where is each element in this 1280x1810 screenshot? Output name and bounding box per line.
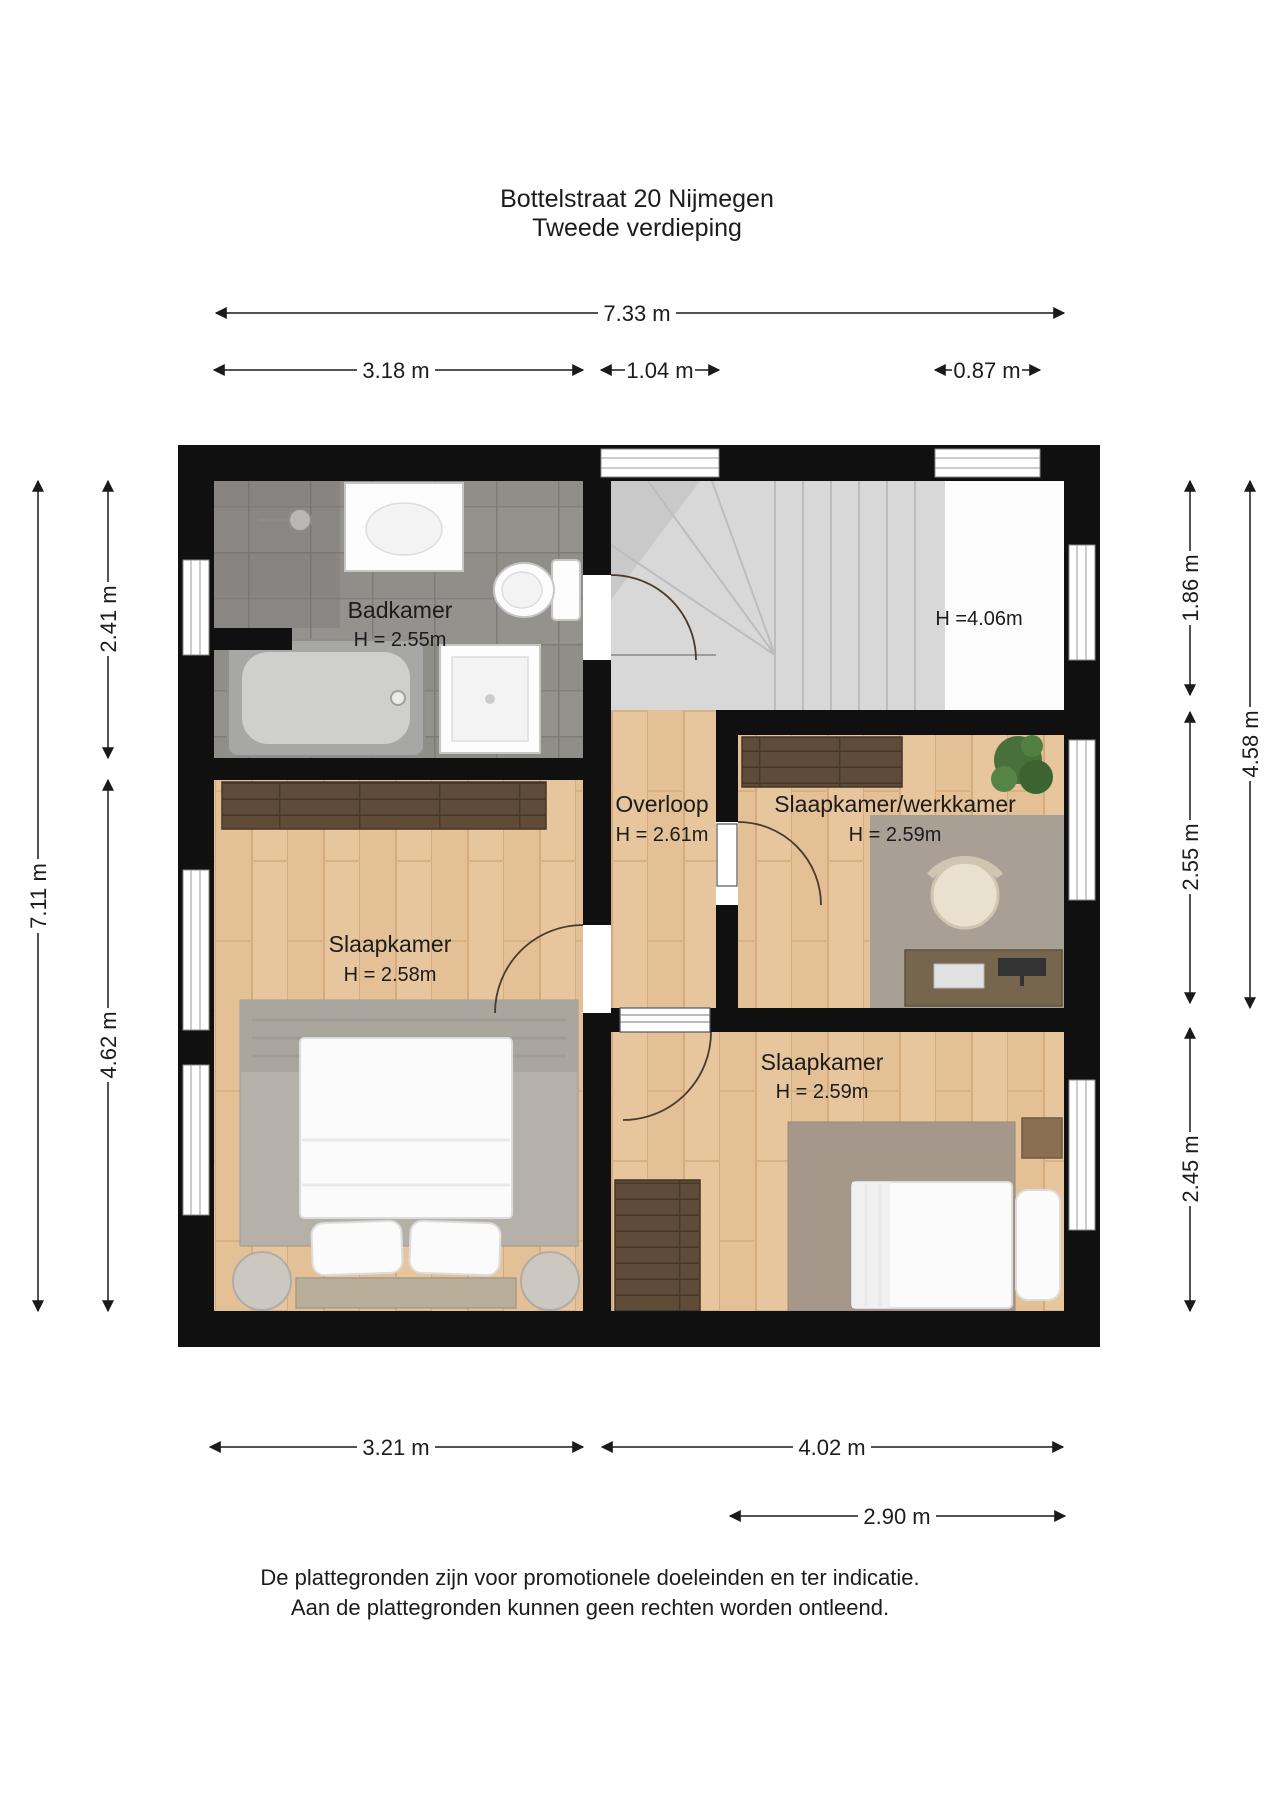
side-table [521, 1252, 579, 1310]
wall-rear-bedroom-top [710, 1008, 1064, 1032]
wall-landing-office-upper [716, 735, 738, 822]
pillow [311, 1220, 403, 1275]
window-left-bathroom [183, 560, 209, 655]
svg-text:2.45 m: 2.45 m [1178, 1135, 1203, 1202]
left-bedroom-label: Slaapkamer [329, 931, 452, 957]
wall-bathroom-landing-upper [583, 481, 611, 575]
wall-bathroom-bedroom [583, 660, 611, 925]
bathtub-interior [242, 652, 410, 744]
plan-title: Bottelstraat 20 Nijmegen Tweede verdiepi… [500, 185, 774, 242]
wardrobe [222, 782, 546, 829]
shower-partition-wall [214, 628, 292, 650]
plant-icon [991, 766, 1017, 792]
headboard [296, 1278, 516, 1308]
office-door-leaf [717, 824, 737, 886]
svg-text:4.58 m: 4.58 m [1238, 710, 1263, 777]
disclaimer-line2: Aan de plattegronden kunnen geen rechten… [291, 1595, 889, 1620]
window-right-rear-bedroom [1069, 1080, 1095, 1230]
rear-bedroom-label: Slaapkamer [761, 1049, 884, 1075]
washbasin-bowl [366, 503, 442, 555]
shower-area [214, 481, 340, 628]
window-right-office [1069, 740, 1095, 900]
window-left-bedroom-upper [183, 870, 209, 1030]
stairwell: H =4.06m [611, 481, 1064, 710]
svg-text:7.33 m: 7.33 m [603, 301, 670, 326]
double-bed-duvet [300, 1038, 512, 1218]
left-bedroom-height: H = 2.58m [344, 964, 437, 986]
toilet-seat [502, 572, 542, 608]
svg-text:3.18 m: 3.18 m [362, 358, 429, 383]
svg-text:4.02 m: 4.02 m [798, 1435, 865, 1460]
title-line1: Bottelstraat 20 Nijmegen [500, 185, 774, 213]
monitor [998, 958, 1046, 976]
wall-bathroom-bottom [214, 758, 583, 780]
floorplan-image: Bottelstraat 20 Nijmegen Tweede verdiepi… [0, 0, 1280, 1810]
shower-drain [485, 694, 495, 704]
disclaimer-line1: De plattegronden zijn voor promotionele … [260, 1565, 919, 1590]
svg-text:0.87 m: 0.87 m [953, 358, 1020, 383]
toilet-cistern [552, 560, 580, 620]
side-table [233, 1252, 291, 1310]
window-left-bedroom-lower [183, 1065, 209, 1215]
keyboard [934, 964, 984, 988]
pillow [409, 1220, 501, 1275]
office-bedroom-height: H = 2.59m [849, 824, 942, 846]
wardrobe [742, 737, 902, 787]
stairwell-height-label: H =4.06m [935, 608, 1022, 630]
svg-text:2.55 m: 2.55 m [1178, 823, 1203, 890]
wardrobe [615, 1180, 700, 1311]
office-bedroom-label: Slaapkamer/werkkamer [774, 791, 1016, 817]
title-line2: Tweede verdieping [532, 214, 742, 242]
wall-rear-bedroom-left [611, 1008, 620, 1032]
svg-text:4.62 m: 4.62 m [96, 1011, 121, 1078]
bathtub-faucet [391, 691, 405, 705]
floorplan-page: Bottelstraat 20 Nijmegen Tweede verdiepi… [0, 0, 1280, 1810]
window-top-right [935, 449, 1040, 477]
svg-text:2.90 m: 2.90 m [863, 1504, 930, 1529]
bathroom-label: Badkamer [348, 597, 453, 623]
rear-bedroom-door-threshold [620, 1008, 710, 1032]
svg-text:7.11 m: 7.11 m [26, 863, 51, 929]
nightstand [1022, 1118, 1062, 1158]
svg-text:1.86 m: 1.86 m [1178, 554, 1203, 621]
svg-text:2.41 m: 2.41 m [96, 585, 121, 652]
svg-text:1.04 m: 1.04 m [626, 358, 693, 383]
svg-text:3.21 m: 3.21 m [362, 1435, 429, 1460]
window-right-stairwell [1069, 545, 1095, 660]
wall-bedroom-lower [583, 1013, 611, 1311]
showerhead-icon [289, 509, 311, 531]
duvet-fold [852, 1182, 890, 1308]
plant-icon [1019, 760, 1053, 794]
stairwell-void [945, 481, 1064, 710]
window-top-landing [601, 449, 719, 477]
landing-height: H = 2.61m [616, 824, 709, 846]
pillow [1016, 1190, 1060, 1300]
plant-icon [1021, 735, 1043, 757]
bathroom-height: H = 2.55m [354, 629, 447, 651]
landing-label: Overloop [615, 791, 708, 817]
wall-stairs-office [716, 710, 1064, 735]
office-chair [932, 862, 998, 928]
rear-bedroom-height: H = 2.59m [776, 1081, 869, 1103]
